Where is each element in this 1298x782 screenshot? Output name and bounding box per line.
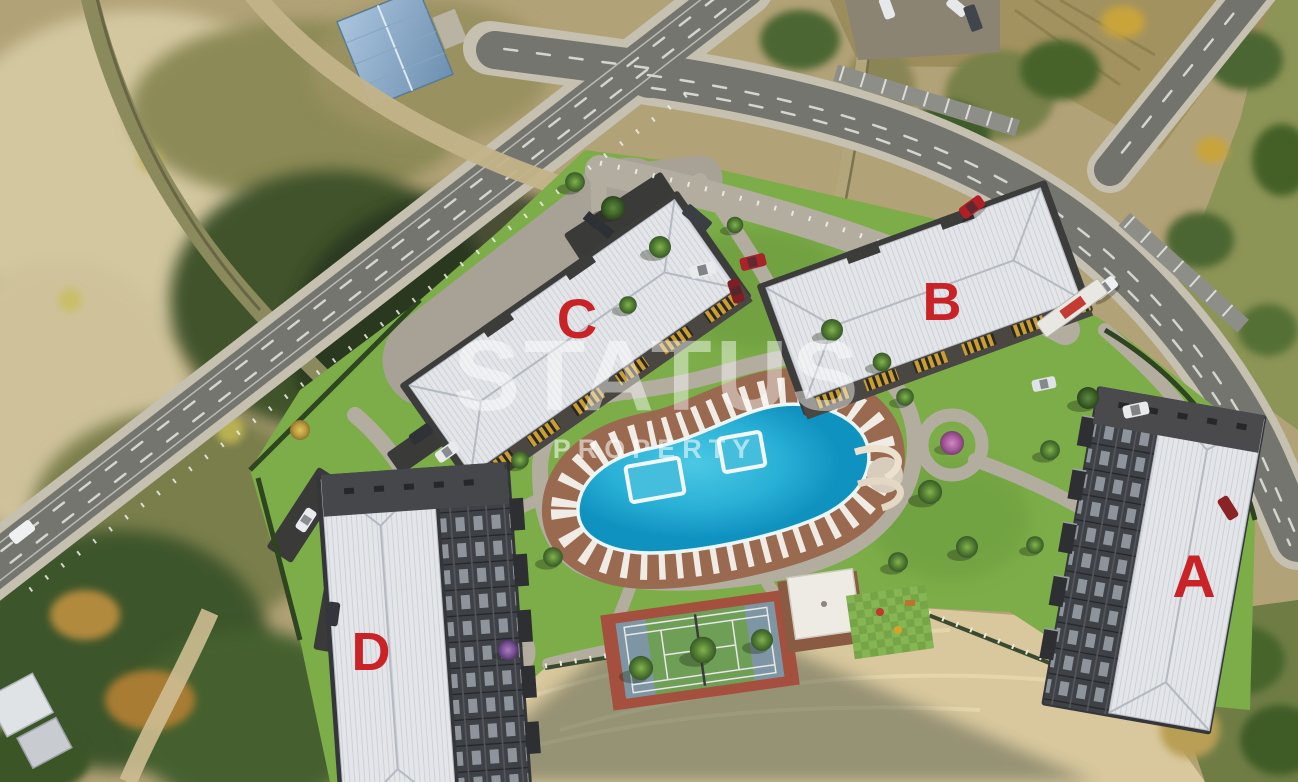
playground	[846, 585, 934, 660]
aerial-site-plan: C B A D STATUS PROPERTY	[0, 0, 1298, 782]
watermark-status: STATUS	[453, 320, 862, 432]
site-plan-render: C B A D STATUS PROPERTY	[0, 0, 1298, 782]
building-label-a[interactable]: A	[1172, 543, 1215, 610]
watermark-property: PROPERTY	[553, 434, 758, 464]
pool-island-1	[625, 458, 684, 503]
building-label-b[interactable]: B	[923, 272, 962, 332]
building-d	[316, 461, 545, 782]
building-label-d[interactable]: D	[352, 622, 391, 682]
